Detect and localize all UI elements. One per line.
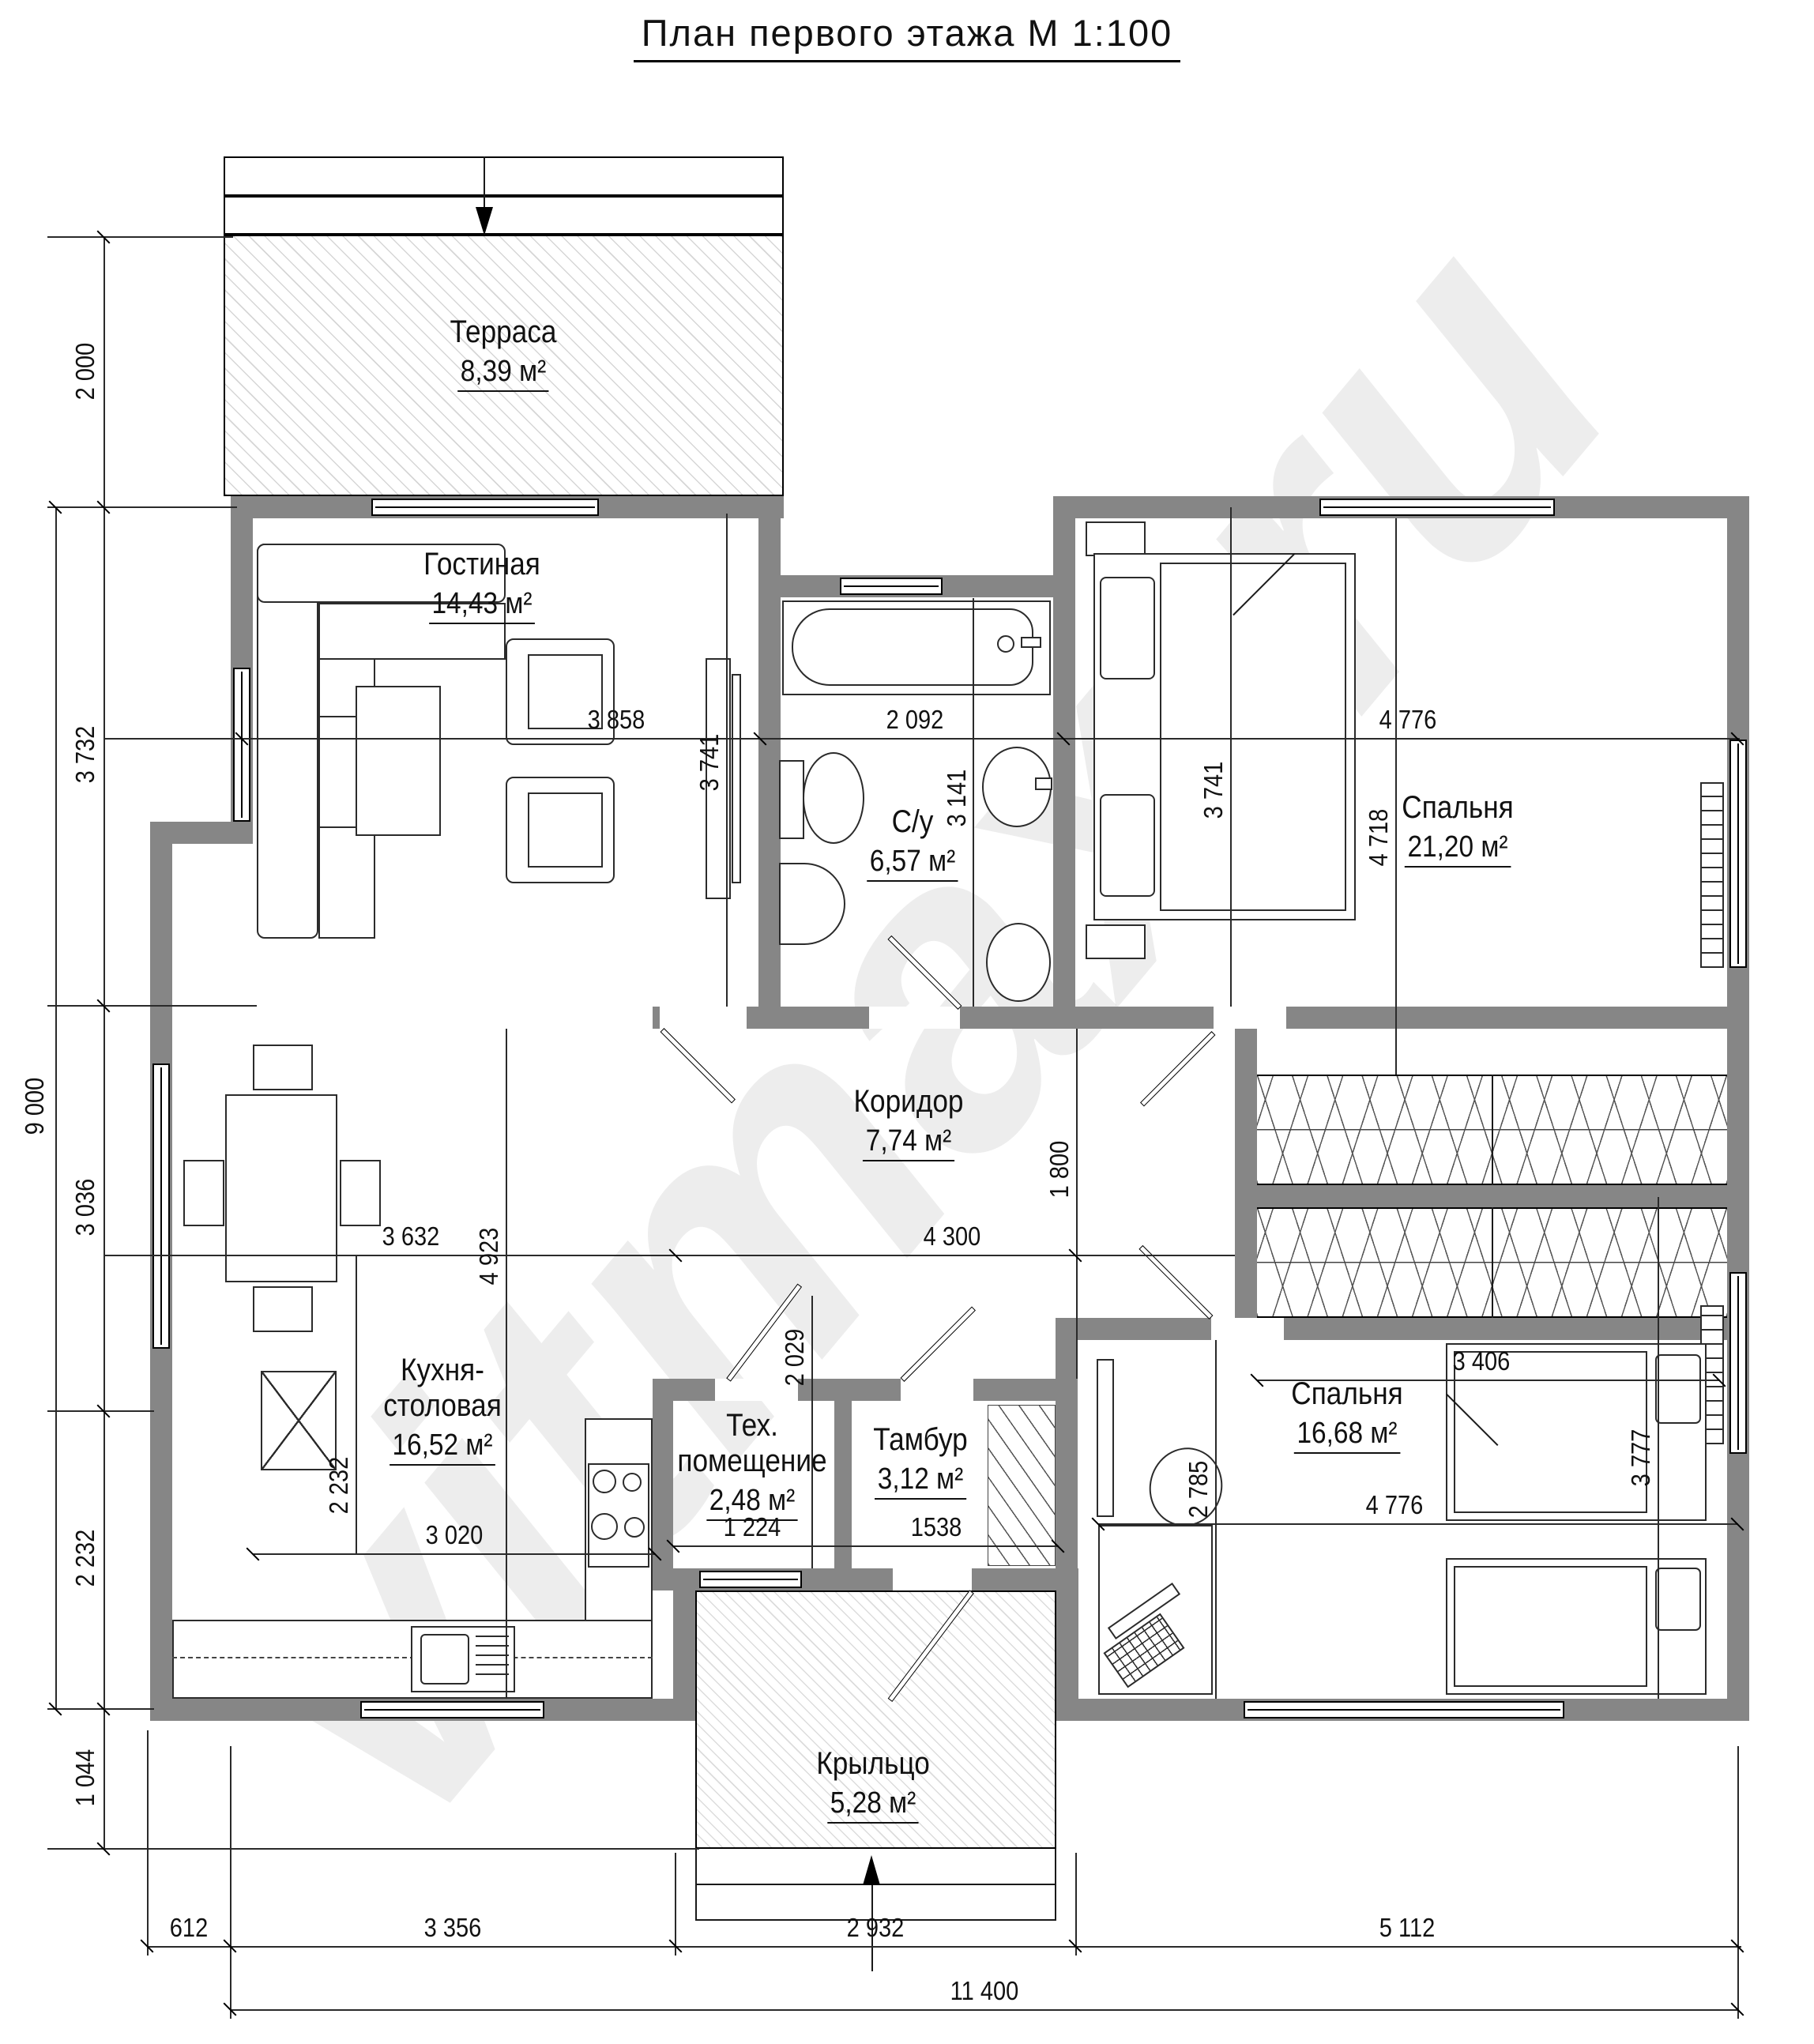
dining-chair-right	[340, 1160, 381, 1226]
dim-bottom-5112: 5 112	[1379, 1913, 1436, 1943]
dim-line-bed2-w	[1098, 1523, 1738, 1525]
dim-corridor-h: 1 800	[1044, 1141, 1074, 1199]
room-label-bedroom1: Спальня 21,20 м²	[1402, 790, 1513, 864]
ext-line-5	[47, 1708, 154, 1710]
dim-line-bed1-d	[1395, 518, 1397, 1075]
window-bedroom1-right	[1729, 740, 1747, 968]
door-opening-living	[660, 1007, 747, 1029]
armchair-2-seat	[528, 792, 603, 868]
window-bedroom1-top	[1319, 499, 1555, 516]
ext-bottom-2	[230, 1746, 231, 2019]
bed-single-2-pillow	[1655, 1568, 1701, 1631]
nightstand-top	[1086, 521, 1146, 556]
sink-2	[986, 923, 1051, 1002]
room-label-kitchen: Кухня- столовая 16,52 м²	[383, 1353, 502, 1462]
bed-double-pillow-2	[1100, 794, 1155, 897]
window-bathroom	[840, 578, 943, 595]
stove-burner-3	[591, 1513, 618, 1540]
dim-kitchen-w2: 3 020	[426, 1520, 484, 1550]
dim-line-kitchen-corridor-w	[104, 1255, 1235, 1256]
dim-line-9000	[55, 507, 57, 1709]
dim-left-2000: 2 000	[70, 343, 100, 401]
stove-burner-1	[593, 1470, 616, 1493]
closet-divider-line-1	[1492, 1075, 1493, 1185]
dim-tech-h: 2 029	[780, 1329, 810, 1387]
coffee-table	[356, 686, 441, 836]
room-label-living: Гостиная 14,43 м²	[423, 547, 540, 621]
ext-line-6	[47, 1848, 699, 1850]
dim-left-3732: 3 732	[70, 726, 100, 784]
dim-bottom-3356: 3 356	[424, 1913, 482, 1943]
wall-tech-tambour-divider	[834, 1379, 852, 1590]
axis-line-main	[104, 738, 1740, 740]
ext-bottom-4	[1075, 1853, 1077, 1956]
entry-arrow-icon	[863, 1855, 880, 1885]
ext-line-2	[47, 506, 237, 508]
ext-bottom-3	[675, 1853, 676, 1956]
dining-chair-bottom	[253, 1286, 313, 1332]
ext-line-4	[47, 1410, 154, 1412]
page-title: План первого этажа М 1:100	[0, 11, 1814, 55]
room-label-bathroom: С/у 6,57 м²	[867, 804, 958, 879]
dim-line-bed2-d	[1658, 1197, 1659, 1699]
dim-bed1-w: 4 776	[1379, 705, 1437, 735]
wall-living-right	[758, 496, 781, 1029]
roof-direction-arrow-icon	[476, 207, 493, 235]
room-label-porch: Крыльцо 5,28 м²	[816, 1746, 930, 1820]
dim-living-h: 3 741	[694, 734, 724, 792]
room-label-corridor: Коридор 7,74 м²	[853, 1084, 963, 1158]
dim-line-kitchen-w2	[253, 1553, 656, 1555]
window-terrace	[371, 499, 599, 516]
shelf-bedroom2	[1097, 1359, 1114, 1517]
dim-left-9000: 9 000	[20, 1078, 50, 1135]
wall-right-house	[1727, 496, 1749, 1721]
dim-kitchen-h2: 2 232	[324, 1457, 354, 1515]
ext-bottom-5	[1737, 1746, 1739, 2019]
nightstand-bottom	[1086, 924, 1146, 959]
dim-bed2-h: 2 785	[1184, 1461, 1214, 1519]
wall-bedroom1-bottom	[1075, 1007, 1749, 1029]
dim-bed2-w: 4 776	[1366, 1490, 1424, 1520]
dim-bed1-h: 3 741	[1199, 762, 1229, 819]
wall-tech-left	[653, 1379, 673, 1590]
door-opening-tambour	[901, 1379, 973, 1401]
ext-bottom-1	[147, 1730, 149, 1956]
wall-bedroom2-top	[1078, 1318, 1749, 1340]
dim-bottom-612: 612	[170, 1913, 208, 1943]
window-kitchen-left	[152, 1063, 170, 1349]
dim-living-w: 3 858	[588, 705, 645, 735]
tv	[732, 674, 741, 883]
kitchen-sink-drainboard	[476, 1636, 509, 1683]
dim-line-bottom-chain	[147, 1946, 1741, 1948]
door-opening-bathroom	[869, 1007, 960, 1029]
window-kitchen-bottom	[360, 1701, 544, 1718]
dim-kitchen-w: 3 632	[382, 1222, 440, 1252]
dim-kitchen-h: 4 923	[474, 1228, 504, 1285]
wall-porch-left	[673, 1590, 695, 1721]
dining-chair-left	[183, 1160, 224, 1226]
dim-bottom-11400: 11 400	[950, 1976, 1019, 2006]
window-bedroom2-right	[1729, 1272, 1747, 1454]
wall-closet-left	[1235, 1029, 1257, 1318]
wall-closet-divider	[1257, 1185, 1727, 1207]
dim-left-1044: 1 044	[70, 1749, 100, 1807]
dim-line-bath-h	[973, 598, 974, 1007]
bathtub-drain	[997, 635, 1014, 653]
roof-overhang-band-2	[224, 196, 784, 235]
dim-chain-left	[103, 237, 105, 1849]
bed-double-pillow-1	[1100, 577, 1155, 679]
sink-1-tap-icon	[1035, 777, 1052, 790]
toilet-bowl	[803, 752, 864, 844]
porch-step-side-right	[1055, 1849, 1056, 1921]
dim-line-kitchen-h	[506, 1029, 507, 1699]
door-leaf-bedroom2	[1138, 1245, 1213, 1319]
dim-bed2-d: 3 777	[1626, 1429, 1656, 1487]
ext-line-1	[47, 236, 233, 238]
fridge	[261, 1371, 337, 1470]
stove-burner-2	[623, 1473, 642, 1492]
roof-overhang-band-1	[224, 156, 784, 196]
ext-line-3	[47, 1005, 257, 1007]
room-label-tech: Тех. помещение 2,48 м²	[677, 1408, 826, 1518]
dim-tambour-w: 1538	[911, 1512, 962, 1542]
radiator-bedroom1	[1700, 782, 1724, 968]
dim-line-living-h	[726, 514, 728, 1007]
bed-double-mattress	[1160, 563, 1346, 911]
window-tech-bottom	[699, 1571, 802, 1588]
dim-left-2232: 2 232	[70, 1530, 100, 1587]
tambour-closet	[988, 1405, 1056, 1566]
closet-divider-line-2	[1492, 1207, 1493, 1318]
dim-line-bed1-h	[1230, 507, 1232, 1007]
floor-plan: vitmax.ru План первого этажа М 1:100	[0, 0, 1814, 2044]
dining-chair-top	[253, 1045, 313, 1090]
porch-step-side-left	[695, 1849, 697, 1921]
door-opening-bedroom2	[1211, 1318, 1284, 1340]
bathtub-tap-icon	[1021, 637, 1041, 648]
door-opening-entry	[893, 1568, 972, 1590]
dim-closet-w: 3 406	[1453, 1346, 1511, 1376]
dim-line-kitchen-h2	[356, 1255, 357, 1554]
dim-line-bed2-h	[1215, 1340, 1217, 1699]
dim-line-tech-tambour-w	[673, 1545, 1059, 1547]
dim-bed1-d: 4 718	[1364, 809, 1394, 867]
dim-bottom-2932: 2 932	[847, 1913, 905, 1943]
dim-corridor-w: 4 300	[924, 1222, 981, 1252]
dim-left-3036: 3 036	[70, 1179, 100, 1237]
window-bedroom2-bottom	[1244, 1701, 1564, 1718]
bed-single-1-pillow	[1655, 1354, 1701, 1424]
kitchen-sink-basin	[420, 1634, 469, 1685]
room-label-bedroom2: Спальня 16,68 м²	[1291, 1376, 1402, 1451]
toilet-tank	[779, 760, 804, 839]
dim-line-corridor-h	[1076, 1029, 1078, 1379]
door-opening-bedroom1	[1214, 1007, 1286, 1029]
room-label-terrace: Терраса 8,39 м²	[450, 314, 556, 389]
bed-single-2-blanket	[1454, 1566, 1647, 1687]
room-label-tambour: Тамбур 3,12 м²	[873, 1422, 967, 1496]
stove-burner-4	[624, 1517, 645, 1538]
dim-bath-w: 2 092	[886, 705, 944, 735]
dim-line-bottom-total	[231, 2009, 1738, 2011]
sofa-back-vertical	[257, 544, 318, 939]
